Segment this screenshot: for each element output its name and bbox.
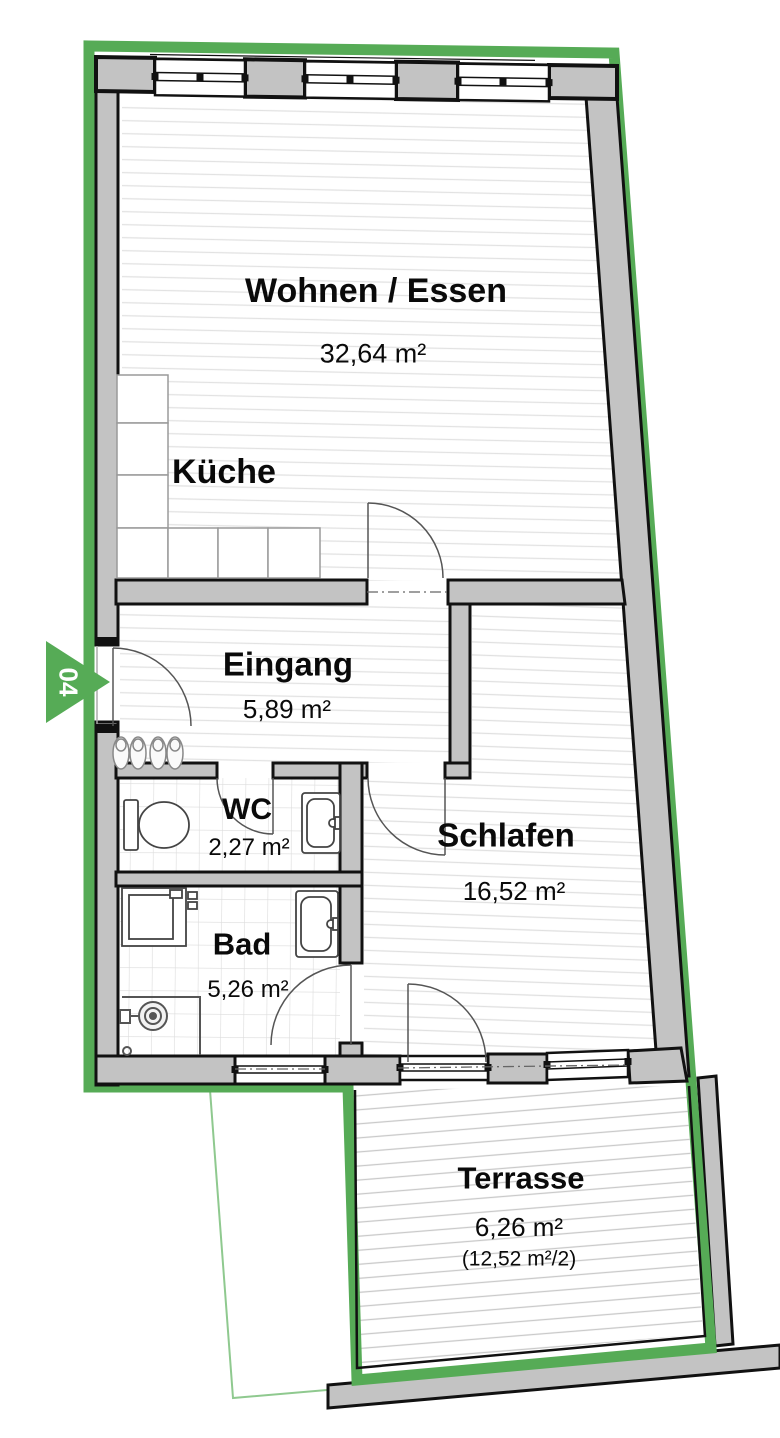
wall-bad-bottom-right <box>325 1056 400 1084</box>
wall-eingang-schlafen <box>450 604 470 776</box>
toilet-icon <box>124 800 189 850</box>
room-area-wc: 2,27 m² <box>208 836 289 860</box>
top-windows <box>96 55 617 102</box>
room-label-schlafen: Schlafen <box>437 819 575 852</box>
bottom-windows <box>232 1050 632 1084</box>
wall-wc-bad <box>116 872 362 886</box>
floor-eingang <box>120 604 450 763</box>
floor-plan-drawing <box>0 0 780 1438</box>
bad-window <box>235 1056 325 1084</box>
wall-wohnen-schlafen <box>448 580 625 604</box>
entrance-jamb-bottom <box>95 724 118 733</box>
room-area-terrasse: 6,26 m² <box>475 1214 563 1240</box>
room-label-wc: WC <box>222 795 272 825</box>
wall-eingang-wc-1 <box>116 763 217 778</box>
room-area-wohnen: 32,64 m² <box>320 341 427 368</box>
wc-sink-icon <box>302 793 340 853</box>
unit-marker-label: 04 <box>53 668 84 697</box>
property-line <box>210 1090 362 1398</box>
wall-kueche-eingang <box>116 580 367 604</box>
room-area-eingang: 5,89 m² <box>243 696 331 722</box>
wall-eingang-wc-3 <box>445 763 470 778</box>
wall-schlafen-bottom-pier <box>488 1054 547 1083</box>
washing-machine-icon <box>122 888 197 946</box>
floor-plan: Wohnen / Essen 32,64 m² Küche Eingang 5,… <box>0 0 780 1438</box>
wall-left-upper <box>96 59 118 645</box>
room-label-bad: Bad <box>213 929 272 960</box>
room-label-eingang: Eingang <box>223 648 353 681</box>
room-label-terrasse: Terrasse <box>458 1163 585 1194</box>
room-area-note-terrasse: (12,52 m²/2) <box>462 1249 576 1270</box>
room-area-bad: 5,26 m² <box>207 978 288 1002</box>
window-pier-1 <box>245 59 305 97</box>
wall-bad-bottom-left <box>96 1056 235 1084</box>
bad-sink-icon <box>296 891 338 957</box>
wall-wc-schlafen <box>340 763 362 963</box>
room-label-wohnen: Wohnen / Essen <box>245 274 507 308</box>
wall-bottom-right-corner <box>628 1048 687 1083</box>
entrance-jamb-top <box>95 637 118 646</box>
room-label-kueche: Küche <box>172 455 276 489</box>
window-pier-2 <box>396 62 458 100</box>
room-area-schlafen: 16,52 m² <box>463 878 566 904</box>
window-pier-right-corner <box>549 65 617 99</box>
window-pier-left-corner <box>96 57 155 92</box>
